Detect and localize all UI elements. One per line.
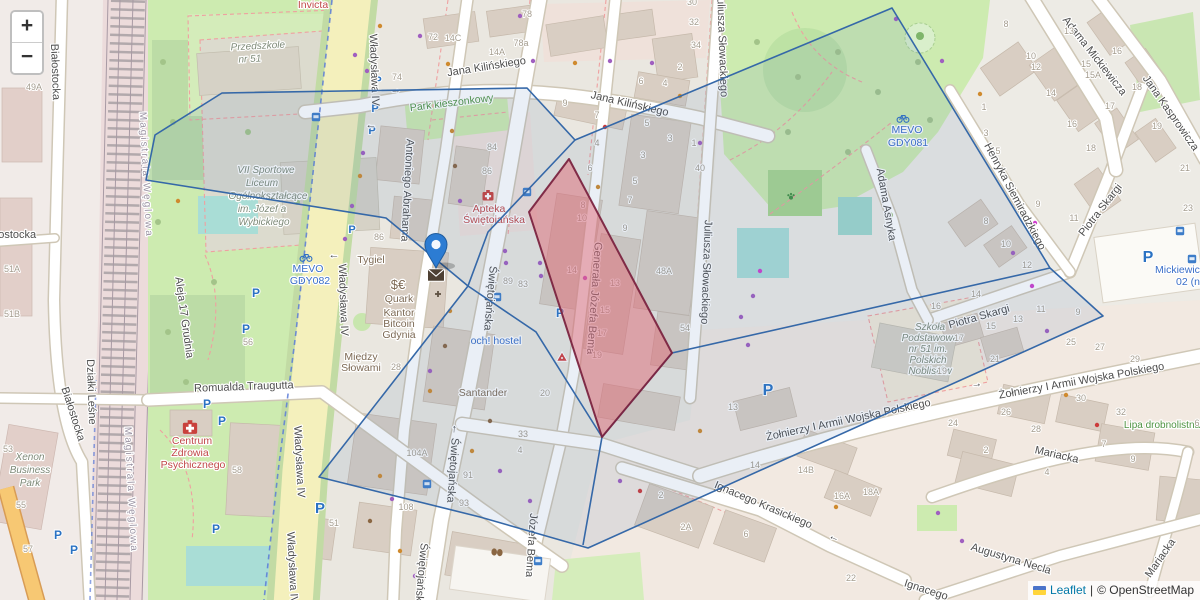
envelope-icon bbox=[428, 269, 445, 281]
poi-dot bbox=[368, 519, 372, 523]
house-number: 58 bbox=[232, 465, 242, 475]
svg-text:P: P bbox=[203, 397, 211, 411]
svg-text:P: P bbox=[315, 500, 325, 517]
parking-icon: P bbox=[218, 414, 226, 428]
house-number: 78 bbox=[522, 9, 532, 19]
attribution-bar: Leaflet | © OpenStreetMap bbox=[1028, 581, 1200, 600]
house-number: 9 bbox=[1130, 454, 1135, 464]
svg-text:P: P bbox=[348, 224, 355, 236]
house-number: 4 bbox=[1044, 467, 1049, 477]
house-number: 56 bbox=[243, 337, 253, 347]
shop-label: Tygiel bbox=[357, 254, 384, 266]
poi-dot bbox=[378, 24, 382, 28]
poi-dot bbox=[754, 39, 760, 45]
parking-icon: P bbox=[212, 522, 220, 536]
house-number: 6 bbox=[638, 76, 643, 86]
house-number: 53 bbox=[3, 444, 13, 454]
svg-text:P: P bbox=[212, 522, 220, 536]
poi-dot bbox=[155, 219, 161, 225]
house-number: 51B bbox=[4, 309, 20, 319]
place-label: Park bbox=[20, 478, 42, 489]
poi-dot bbox=[1064, 393, 1068, 397]
svg-text:P: P bbox=[218, 414, 226, 428]
poi-dot bbox=[390, 497, 394, 501]
map-canvas: PPPPPPPPPPPPPPP BiałostockaBiałostockaBi… bbox=[0, 0, 1200, 600]
poi-dot bbox=[183, 379, 189, 385]
parking-icon: P bbox=[203, 397, 211, 411]
house-number: 21 bbox=[1180, 163, 1190, 173]
house-number: 15A bbox=[1085, 70, 1101, 80]
house-number: 12 bbox=[1031, 62, 1041, 72]
house-number: 16A bbox=[834, 491, 850, 501]
house-number: 30 bbox=[687, 0, 697, 7]
house-number: 30 bbox=[1076, 393, 1086, 403]
house-number: 51A bbox=[4, 264, 20, 274]
house-number: 9 bbox=[1035, 199, 1040, 209]
house-number: 5 bbox=[995, 146, 1000, 156]
street-label: Działki Leśne bbox=[84, 359, 98, 425]
poi-dot bbox=[353, 53, 357, 57]
poi-dot bbox=[531, 59, 535, 63]
poi-dot bbox=[936, 511, 940, 515]
house-number: 28 bbox=[1031, 424, 1041, 434]
svg-text:P: P bbox=[70, 543, 78, 557]
poi-dot bbox=[834, 505, 838, 509]
amenity-label: Invicta bbox=[298, 0, 329, 11]
street-label: Władysława IV bbox=[336, 264, 351, 337]
house-number: 72 bbox=[428, 32, 438, 42]
poi-dot bbox=[1095, 423, 1099, 427]
shop-label: $€ bbox=[391, 277, 406, 292]
house-number: 6 bbox=[743, 529, 748, 539]
house-number: 14B bbox=[798, 465, 814, 475]
house-number: 18 bbox=[1086, 143, 1096, 153]
svg-text:P: P bbox=[242, 322, 250, 336]
house-number: 3 bbox=[983, 128, 988, 138]
house-number: 26 bbox=[1001, 407, 1011, 417]
map[interactable]: PPPPPPPPPPPPPPP BiałostockaBiałostockaBi… bbox=[0, 0, 1200, 600]
house-number: 10 bbox=[1026, 51, 1036, 61]
poi-dot bbox=[940, 59, 944, 63]
poi-dot bbox=[176, 199, 180, 203]
house-number: 2A bbox=[680, 522, 691, 532]
shop-label: Quark bbox=[385, 293, 414, 305]
svg-text:P: P bbox=[54, 528, 62, 542]
house-number: 1 bbox=[981, 102, 986, 112]
poi-dot bbox=[650, 61, 654, 65]
parking-icon: P bbox=[70, 543, 78, 557]
house-number: 55 bbox=[16, 500, 26, 510]
house-number: 13 bbox=[1064, 26, 1074, 36]
poi-dot bbox=[960, 539, 964, 543]
place-label: Wybickiego bbox=[238, 217, 290, 228]
ukraine-flag-icon bbox=[1033, 586, 1046, 595]
street-label: Białostocka bbox=[48, 44, 62, 102]
nature-label: Lipa drobnolistna bbox=[1124, 420, 1200, 431]
place-label: Xenon bbox=[15, 452, 45, 463]
house-number: 11 bbox=[1069, 213, 1078, 223]
zoom-in-button[interactable]: + bbox=[12, 12, 42, 42]
house-number: 51 bbox=[329, 518, 339, 528]
house-number: 74 bbox=[392, 72, 402, 82]
poi-dot bbox=[211, 279, 217, 285]
transit-label: Mickiewicza bbox=[1155, 264, 1200, 276]
house-number: 2 bbox=[677, 62, 682, 72]
house-number: 18 bbox=[1132, 82, 1142, 92]
house-number: 34 bbox=[691, 40, 701, 50]
bluebox-icon bbox=[1188, 255, 1196, 263]
osm-attribution: © OpenStreetMap bbox=[1097, 583, 1194, 597]
house-number: 18A bbox=[863, 487, 879, 497]
house-number: 19 bbox=[1152, 121, 1162, 131]
poi-dot bbox=[418, 34, 422, 38]
street-label: ← bbox=[329, 249, 340, 261]
house-number: 32 bbox=[689, 17, 699, 27]
zoom-control: + − bbox=[10, 10, 44, 75]
amenity-label: Zdrowia bbox=[171, 447, 209, 459]
svg-text:P: P bbox=[1143, 249, 1154, 266]
poi-dot bbox=[160, 59, 166, 65]
house-number: 17 bbox=[1105, 101, 1115, 111]
house-number: 27 bbox=[1095, 342, 1105, 352]
house-number: 15 bbox=[1081, 59, 1091, 69]
house-number: 57 bbox=[23, 544, 33, 554]
poi-dot bbox=[165, 329, 171, 335]
shop-label: Słowami bbox=[341, 362, 381, 374]
house-number: 78a bbox=[513, 38, 528, 48]
zoom-out-button[interactable]: − bbox=[12, 42, 42, 73]
place-label: im. Józef a bbox=[238, 204, 287, 215]
poi-dot bbox=[573, 61, 577, 65]
house-number: 7 bbox=[594, 110, 599, 120]
house-number: 28 bbox=[391, 362, 401, 372]
parking-icon: P bbox=[54, 528, 62, 542]
house-number: 29 bbox=[1130, 354, 1140, 364]
street-label: → bbox=[970, 377, 983, 391]
poi-dot bbox=[343, 237, 347, 241]
house-number: 9 bbox=[562, 98, 567, 108]
house-number: 23 bbox=[1183, 203, 1193, 213]
leaflet-link[interactable]: Leaflet bbox=[1050, 583, 1086, 597]
house-number: 7 bbox=[1101, 439, 1106, 449]
house-number: 14A bbox=[489, 47, 505, 57]
shop-label: Gdynia bbox=[382, 329, 415, 341]
house-number: 86 bbox=[374, 232, 384, 242]
house-number: 22 bbox=[846, 573, 856, 583]
house-number: 14C bbox=[445, 33, 462, 43]
place-label: Business bbox=[10, 465, 51, 476]
poi-dot bbox=[446, 62, 450, 66]
house-number: 49A bbox=[26, 82, 42, 92]
house-number: 16 bbox=[1067, 119, 1077, 129]
poi-dot bbox=[398, 549, 402, 553]
poi-dot bbox=[978, 92, 982, 96]
parking-icon: P bbox=[252, 286, 260, 300]
house-number: 14 bbox=[1046, 88, 1056, 98]
house-number: 16 bbox=[1112, 46, 1122, 56]
transit-label: MEVO bbox=[293, 263, 324, 275]
poi-dot bbox=[608, 59, 612, 63]
street-label: Białostocka bbox=[0, 229, 37, 241]
house-number: 8 bbox=[1003, 19, 1008, 29]
amenity-label: Psychicznego bbox=[161, 459, 226, 471]
parking-icon: P bbox=[315, 500, 325, 517]
transit-label: GDY082 bbox=[290, 275, 330, 287]
parking-icon: P bbox=[348, 224, 355, 236]
svg-text:P: P bbox=[252, 286, 260, 300]
attribution-separator: | bbox=[1090, 583, 1093, 597]
parking-icon: P bbox=[1143, 249, 1154, 266]
house-number: 108 bbox=[398, 502, 413, 512]
amenity-label: Centrum bbox=[172, 435, 213, 447]
place-label: nr 51 bbox=[238, 53, 261, 65]
house-number: 4 bbox=[662, 78, 667, 88]
house-number: 25 bbox=[1066, 337, 1076, 347]
house-number: 32 bbox=[1116, 407, 1126, 417]
house-number: 24 bbox=[948, 418, 958, 428]
parking-icon: P bbox=[242, 322, 250, 336]
transit-label: 02 (n bbox=[1176, 276, 1200, 288]
house-number: 2 bbox=[983, 445, 988, 455]
house-number: 6 bbox=[1194, 418, 1199, 428]
bluebox-icon bbox=[1176, 227, 1184, 235]
poi-dot bbox=[916, 32, 924, 40]
